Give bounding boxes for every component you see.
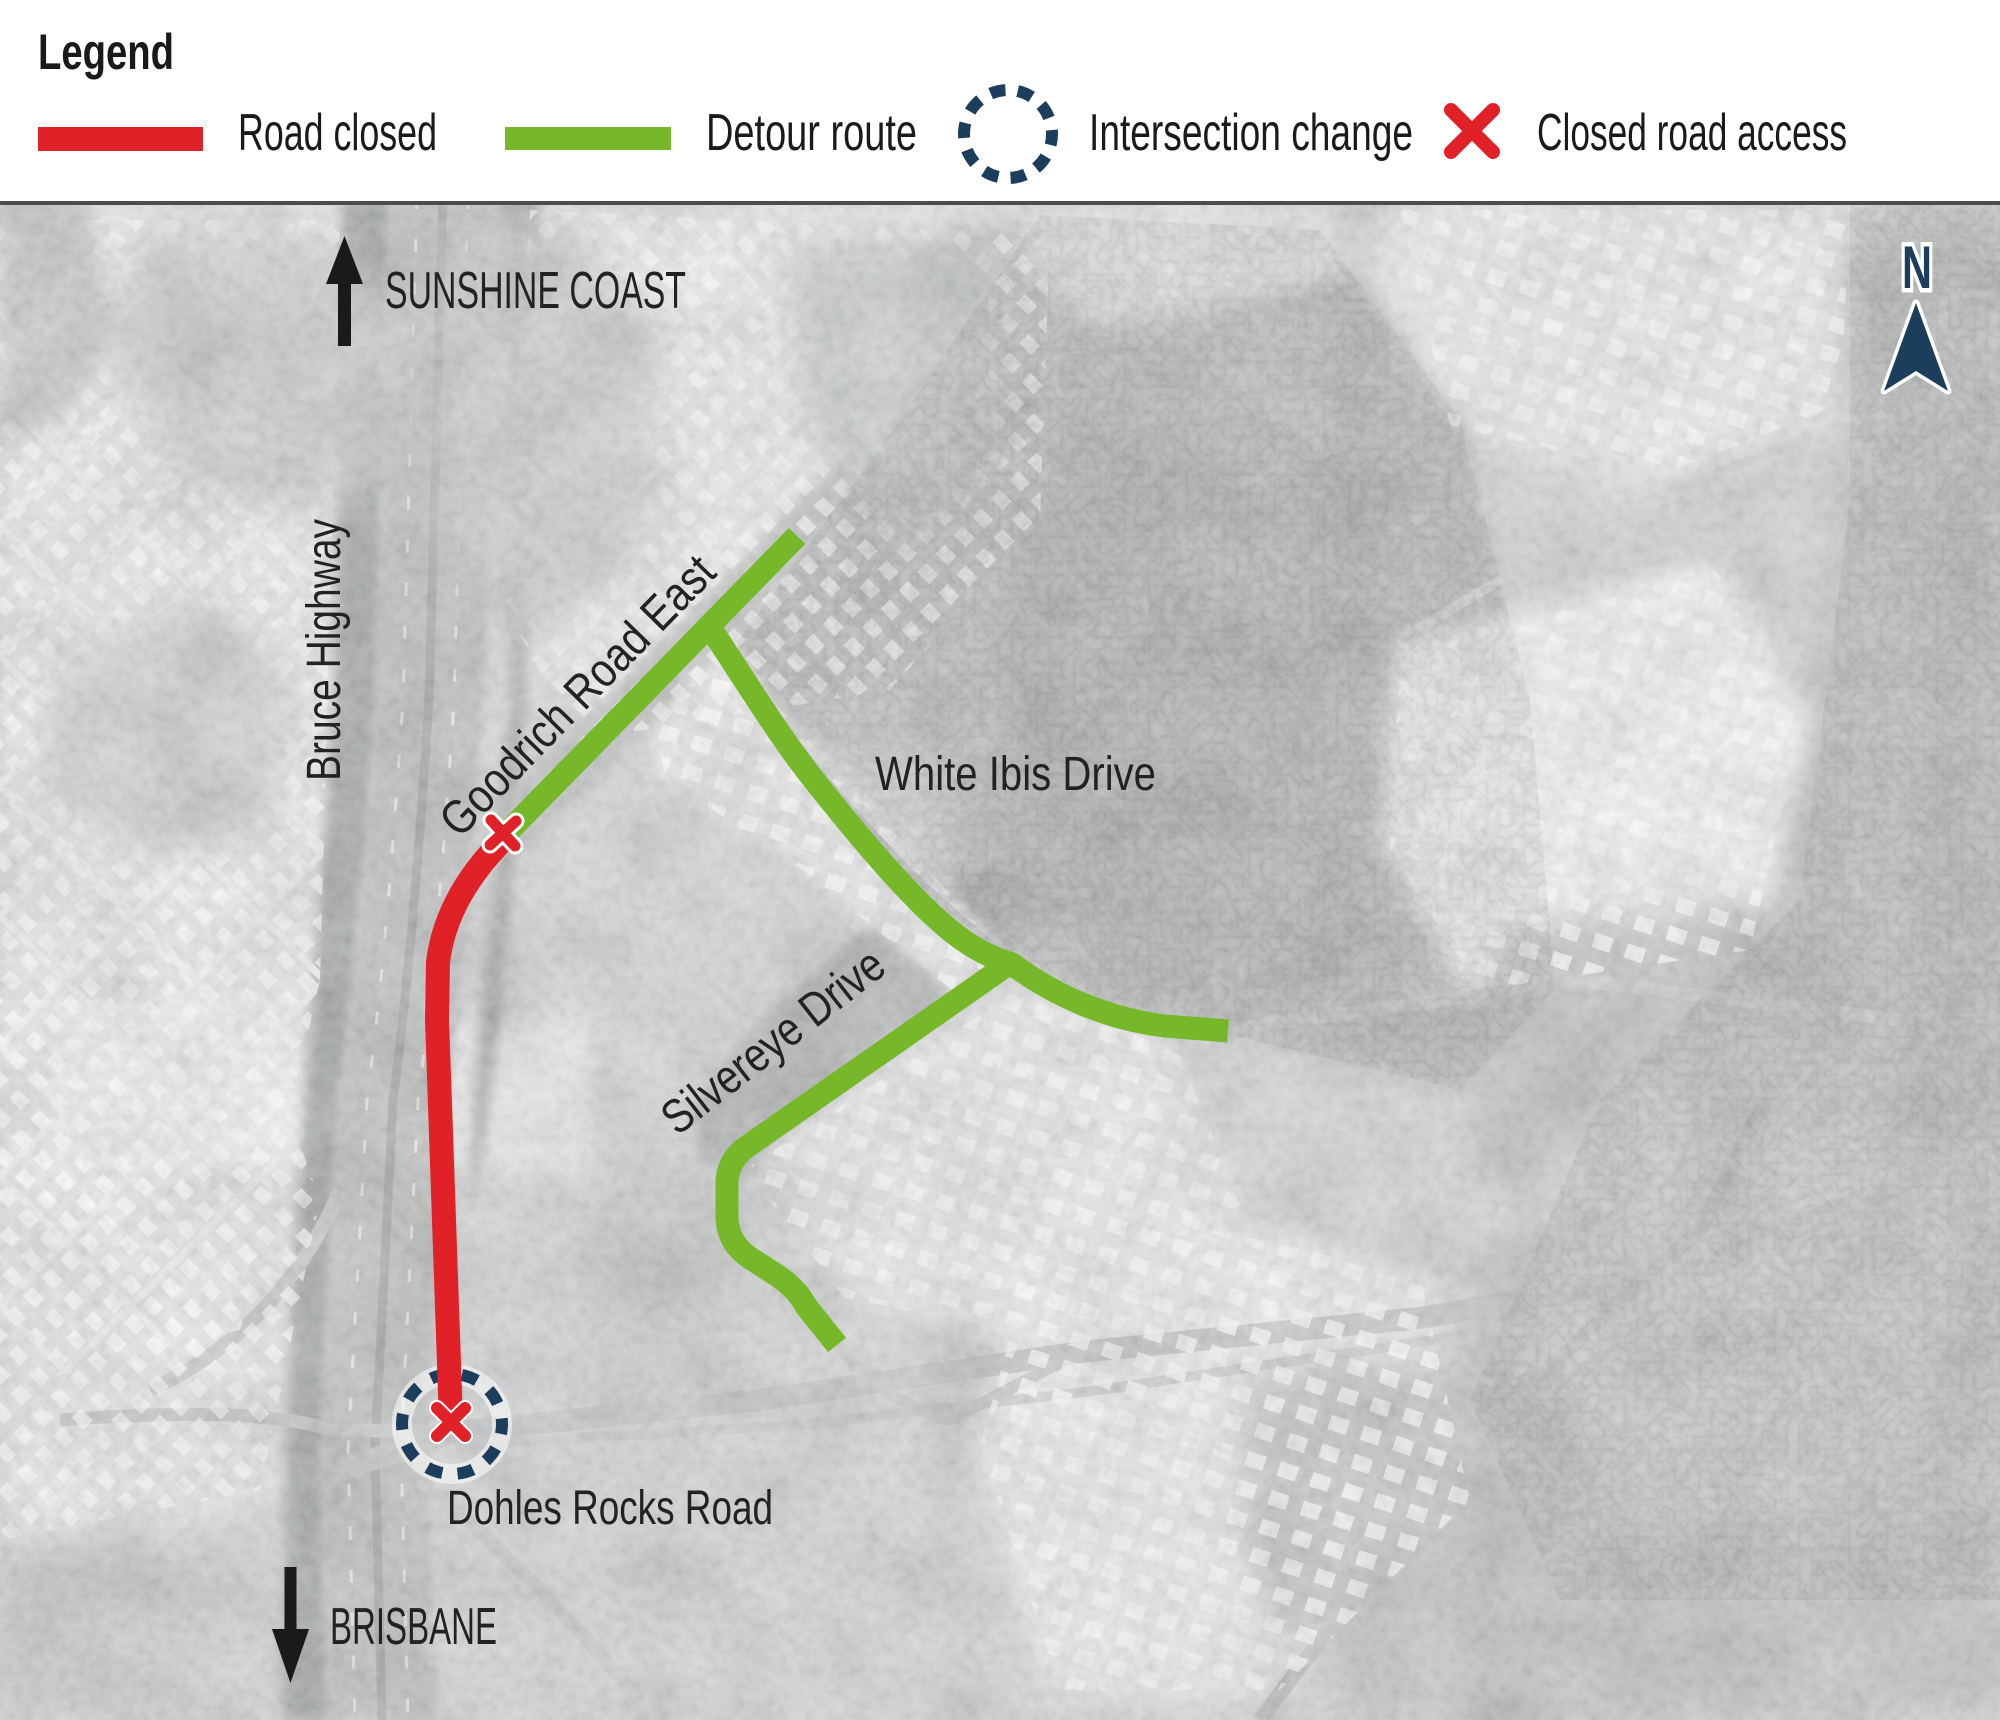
svg-text:Legend: Legend [38, 24, 174, 80]
svg-text:BRISBANE: BRISBANE [330, 1598, 497, 1656]
svg-text:SUNSHINE COAST: SUNSHINE COAST [385, 262, 686, 320]
svg-text:Detour route: Detour route [706, 104, 917, 162]
svg-text:Intersection change: Intersection change [1089, 104, 1413, 162]
svg-text:Dohles Rocks Road: Dohles Rocks Road [447, 1482, 773, 1535]
svg-text:Closed road access: Closed road access [1537, 104, 1847, 162]
svg-text:Road closed: Road closed [238, 104, 437, 162]
svg-text:White Ibis Drive: White Ibis Drive [875, 748, 1156, 801]
svg-text:Bruce Highway: Bruce Highway [298, 519, 351, 781]
svg-text:N: N [1902, 234, 1932, 301]
